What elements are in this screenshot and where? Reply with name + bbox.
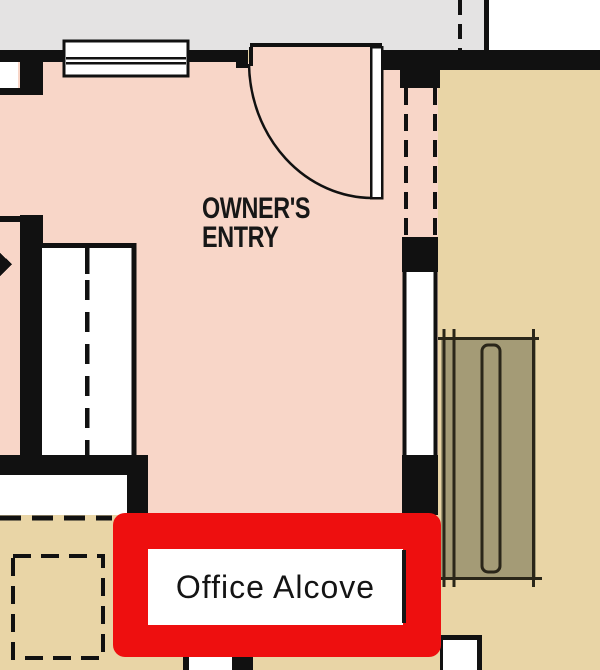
alcove-desk (438, 329, 542, 587)
wall-jamb-cap (236, 50, 248, 68)
door-left-jamb (249, 47, 253, 66)
owners-entry-label-line1: OWNER'S (202, 194, 310, 223)
office-alcove-label-card: Office Alcove (148, 549, 403, 625)
door-panel (371, 47, 382, 198)
bottom-left-wall (0, 455, 148, 518)
owners-entry-label-line2: ENTRY (202, 223, 310, 252)
owners-entry-label: OWNER'S ENTRY (202, 194, 310, 252)
wall-top-right (382, 50, 600, 70)
divider-wall (484, 0, 489, 51)
left-wall-window (0, 62, 43, 95)
closet-block (42, 243, 136, 455)
bottom-right-box (440, 635, 482, 670)
floor-plan-screenshot: OWNER'S ENTRY Office Alcove (0, 0, 600, 670)
wall-top-left (0, 50, 63, 62)
top-right-area (489, 0, 600, 50)
wall-line-through-label (402, 550, 406, 623)
window-top (64, 41, 188, 76)
office-alcove-highlight[interactable]: Office Alcove (113, 513, 441, 657)
door-head-line (250, 43, 382, 47)
bottom-edge-walls (183, 657, 253, 670)
office-alcove-label: Office Alcove (176, 569, 375, 606)
